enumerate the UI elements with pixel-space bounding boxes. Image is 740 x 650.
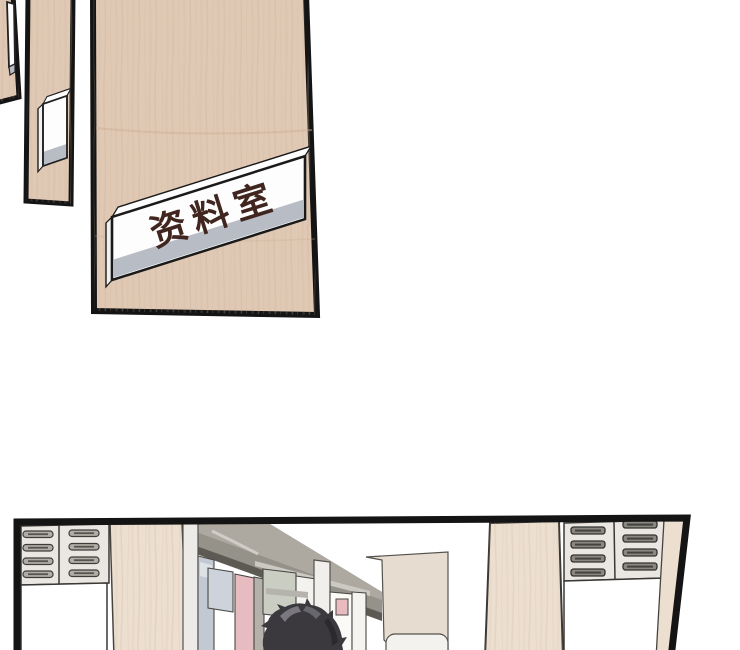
cabinet-lower-door — [21, 583, 107, 650]
drawer-handle — [623, 535, 657, 542]
cabinet-divider — [614, 521, 615, 580]
drawer-handle — [69, 557, 99, 564]
drawer-handle — [69, 570, 99, 577]
binder-pink-label — [336, 599, 348, 615]
wood-pillar — [485, 521, 563, 650]
drawer-handle — [23, 531, 53, 538]
drawer-handle — [23, 558, 53, 565]
drawer-handle — [23, 545, 53, 552]
book-cream — [352, 592, 366, 650]
shelf-post — [183, 523, 198, 650]
drawer-handle — [571, 569, 605, 576]
drawer-handle — [571, 555, 605, 562]
wood-divider — [110, 523, 188, 650]
drawer-handle — [69, 530, 99, 537]
drawer-handle — [69, 544, 99, 551]
drawer-handle — [571, 541, 605, 548]
file-cabinet-left — [21, 524, 109, 650]
door-left-sign-sliver — [7, 2, 15, 75]
archive-panel — [17, 518, 687, 650]
door-left-fragment — [0, 0, 19, 104]
door-main: 资料室 — [93, 0, 317, 315]
binder-lightblue — [208, 568, 233, 612]
book-pink — [235, 574, 254, 650]
drawer-handle — [623, 521, 657, 528]
table-edge — [386, 634, 448, 650]
file-cabinet-right — [564, 519, 684, 650]
comic-artwork: 资料室 — [0, 0, 740, 650]
drawer-handle — [23, 571, 53, 578]
comic-page: 资料室 — [0, 0, 740, 650]
door-middle — [26, 0, 73, 204]
cabinet-lower-door — [564, 578, 666, 650]
drawer-handle — [623, 563, 657, 570]
drawer-handle — [623, 549, 657, 556]
drawer-handle — [571, 527, 605, 534]
